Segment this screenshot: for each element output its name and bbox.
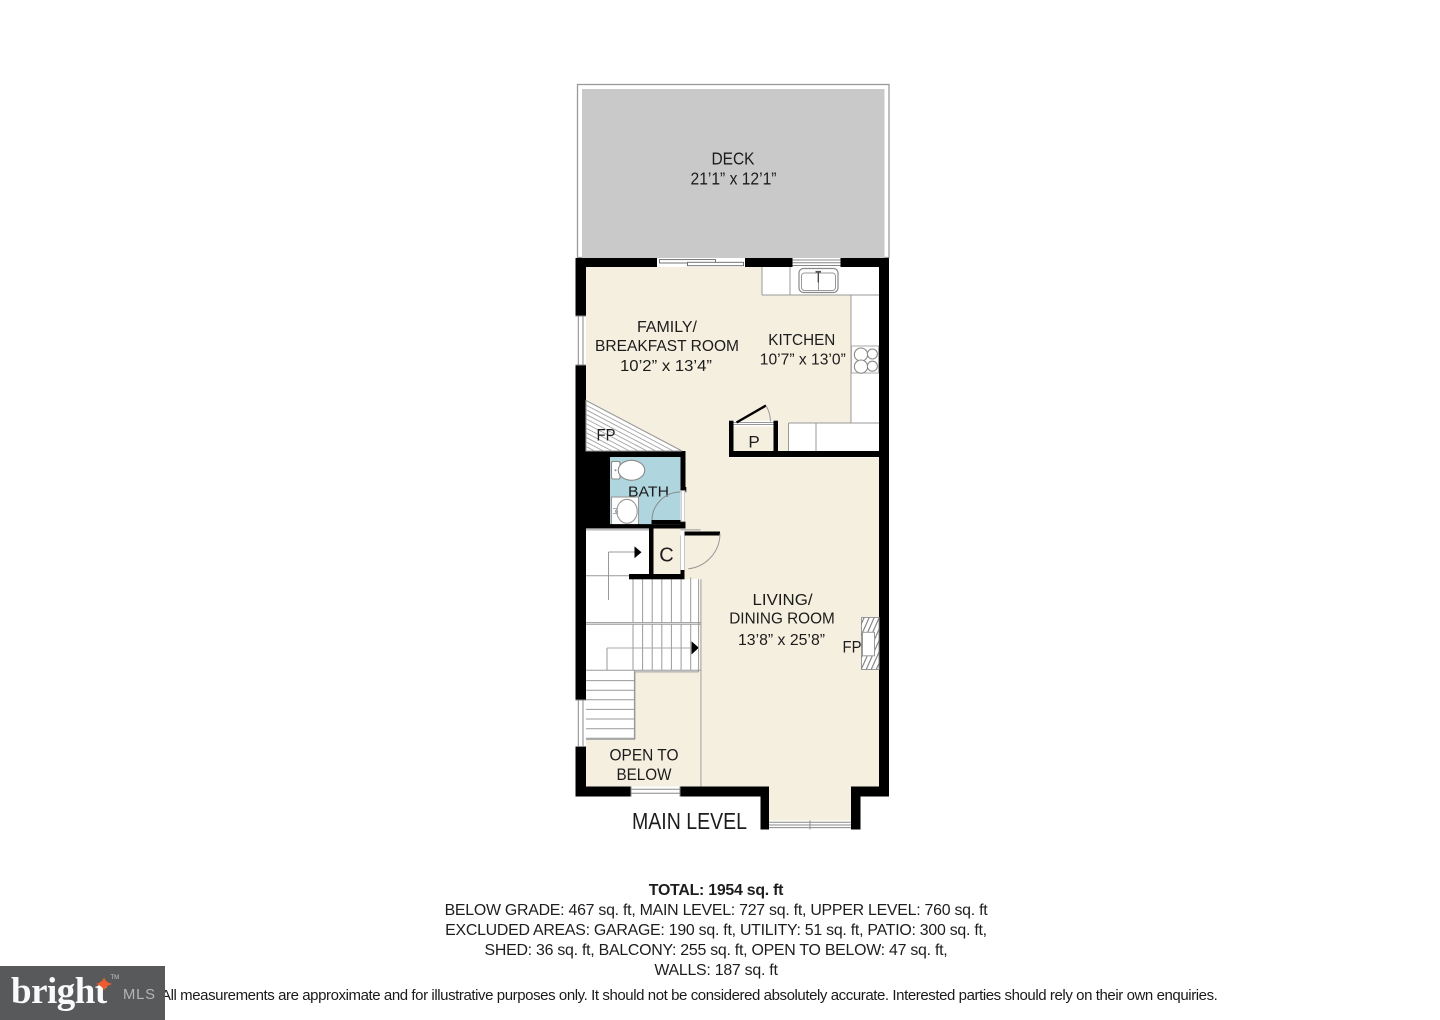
svg-text:MAIN LEVEL: MAIN LEVEL <box>632 808 747 834</box>
svg-text:LIVING/: LIVING/ <box>753 592 814 609</box>
svg-text:FP: FP <box>843 638 862 657</box>
svg-text:BELOW: BELOW <box>617 766 672 784</box>
svg-text:KITCHEN: KITCHEN <box>768 332 835 349</box>
svg-text:13’8” x 25’8”: 13’8” x 25’8” <box>738 632 825 649</box>
svg-text:OPEN TO: OPEN TO <box>610 747 679 765</box>
svg-text:BREAKFAST ROOM: BREAKFAST ROOM <box>595 338 739 355</box>
svg-text:DECK: DECK <box>712 149 755 169</box>
svg-text:P: P <box>748 433 759 452</box>
svg-text:FP: FP <box>597 426 616 445</box>
svg-text:FAMILY/: FAMILY/ <box>637 319 698 336</box>
svg-text:C: C <box>659 545 673 567</box>
svg-text:21’1” x 12’1”: 21’1” x 12’1” <box>691 169 777 189</box>
svg-text:10’7” x 13’0”: 10’7” x 13’0” <box>760 352 846 369</box>
svg-text:10’2” x 13’4”: 10’2” x 13’4” <box>620 358 712 375</box>
svg-text:DINING ROOM: DINING ROOM <box>729 610 835 627</box>
